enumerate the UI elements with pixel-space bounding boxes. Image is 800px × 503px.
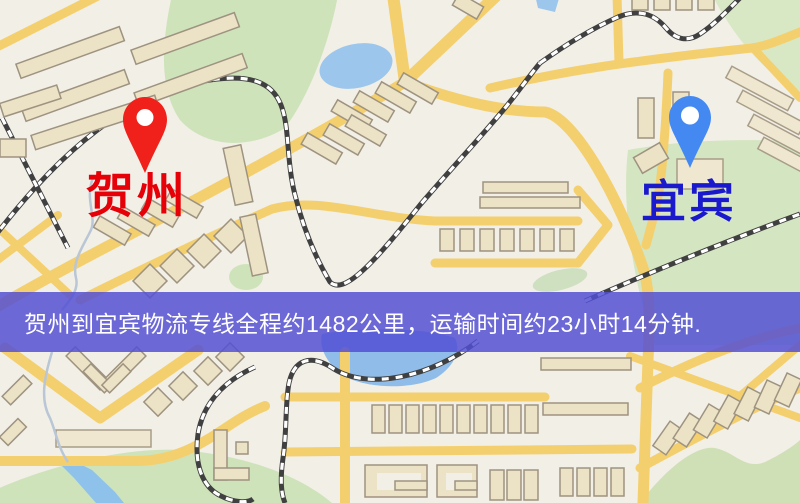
map-screenshot: 贺州到宜宾物流专线全程约1482公里，运输时间约23小时14分钟. 贺州 宜宾 xyxy=(0,0,800,503)
origin-pin-icon[interactable] xyxy=(116,94,174,176)
destination-pin-icon[interactable] xyxy=(663,93,717,171)
destination-pin-hole xyxy=(681,107,699,125)
map-canvas[interactable] xyxy=(0,0,800,503)
origin-city-label: 贺州 xyxy=(86,173,188,221)
destination-city-label: 宜宾 xyxy=(641,179,737,224)
route-info-text: 贺州到宜宾物流专线全程约1482公里，运输时间约23小时14分钟. xyxy=(0,305,701,339)
origin-pin-hole xyxy=(137,109,154,126)
route-info-banner: 贺州到宜宾物流专线全程约1482公里，运输时间约23小时14分钟. xyxy=(0,292,800,352)
origin-pin-shape xyxy=(123,97,167,173)
